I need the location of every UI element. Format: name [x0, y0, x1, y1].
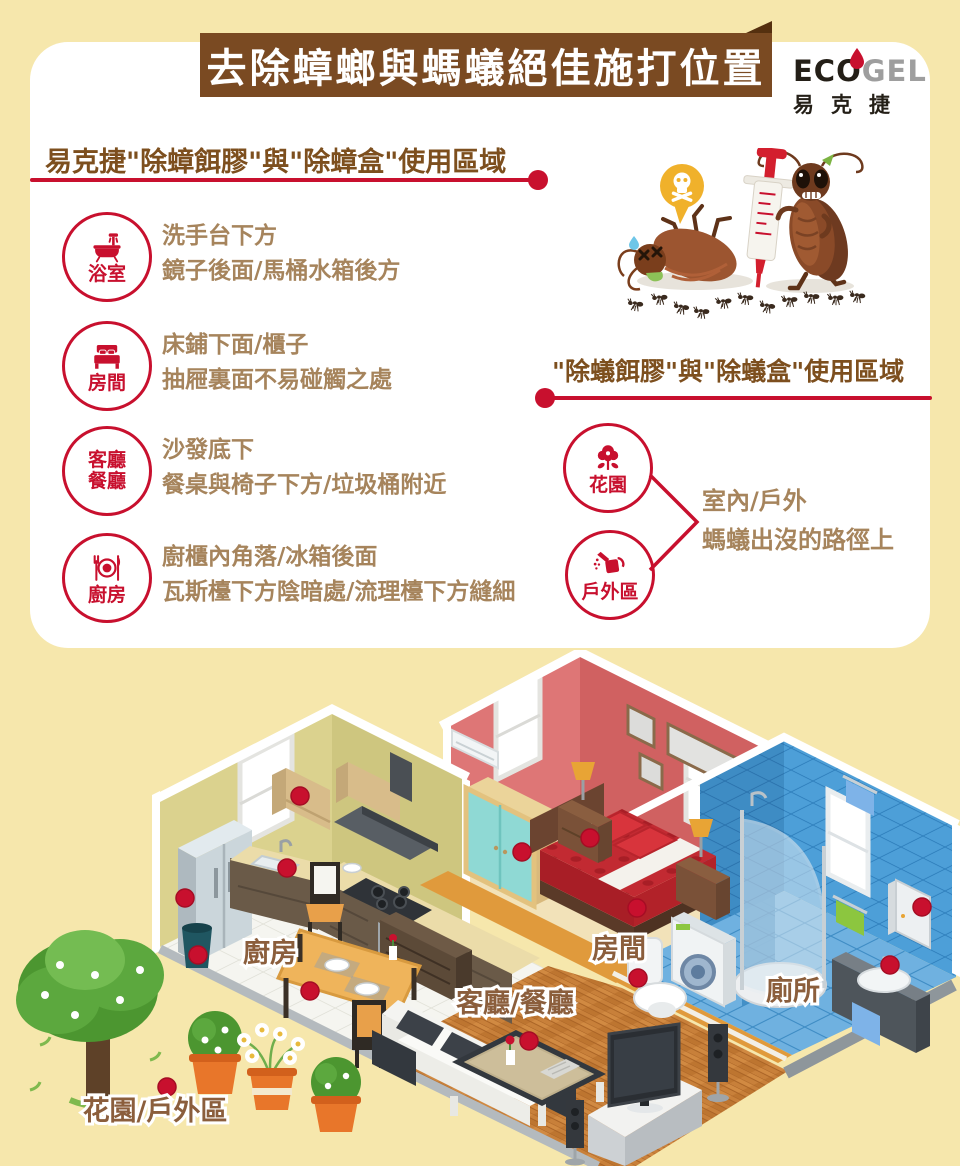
- rule-dot: [535, 388, 555, 408]
- gel-spot-marker: [520, 1032, 538, 1050]
- room-badge-garden: 花園: [563, 423, 653, 513]
- tip-line: 床鋪下面/櫃子: [162, 328, 392, 363]
- tip-line: 廚櫃內角落/冰箱後面: [162, 540, 515, 575]
- house-label-living-dining: 客廳/餐廳: [456, 987, 574, 1019]
- rule-dot: [528, 170, 548, 190]
- logo-text-gel: GEL: [862, 54, 927, 88]
- house-label-kitchen: 廚房: [243, 937, 297, 969]
- tip-line: 洗手台下方: [162, 219, 400, 254]
- room-badge-living-dining: 客廳 餐廳: [62, 426, 152, 516]
- logo-text-ec: EC: [793, 54, 836, 88]
- bathtub-icon: [88, 230, 126, 264]
- room-badge-outdoor: 戶外區: [565, 530, 655, 620]
- room-badge-bathroom: 浴室: [62, 212, 152, 302]
- cockroach-with-syringe: [733, 148, 863, 290]
- bed-icon: [88, 339, 126, 373]
- watering-can-icon: [591, 548, 629, 582]
- gel-spot-marker: [513, 843, 531, 861]
- gel-spot-marker: [881, 956, 899, 974]
- house-label-garden-outdoor: 花園/戶外區: [83, 1096, 228, 1127]
- garden-bush-pot-1: [188, 1011, 242, 1094]
- skull-speech-bubble: [660, 164, 704, 224]
- infographic-page: 去除蟑螂與螞蟻絕佳施打位置 ECOGEL 易克捷 易克捷"除蟑餌膠"與"除蟑盒"…: [0, 0, 960, 1166]
- gel-syringe: [733, 148, 797, 290]
- house-illustration: 廚房 房間 客廳/餐廳 廁所 花園/戶外區: [0, 650, 960, 1166]
- dead-cockroach: [619, 164, 744, 291]
- tip-line: 鏡子後面/馬桶水箱後方: [162, 254, 400, 289]
- tip-line: 餐桌與椅子下方/垃圾桶附近: [162, 468, 446, 503]
- note-line: 室內/戶外: [702, 482, 894, 521]
- ant-trail-illustration: [622, 284, 872, 320]
- gel-spot-marker: [581, 829, 599, 847]
- banner-fold: [746, 21, 772, 33]
- gel-spot-marker: [158, 1078, 176, 1096]
- bathroom-tips: 洗手台下方 鏡子後面/馬桶水箱後方: [162, 219, 400, 289]
- roach-section-rule: [30, 178, 538, 182]
- house-label-bedroom: 房間: [592, 934, 646, 965]
- cutlery-icon: [88, 551, 126, 585]
- room-badge-label: 客廳: [88, 450, 126, 471]
- droplet-icon: [849, 48, 865, 70]
- note-line: 螞蟻出沒的路徑上: [702, 521, 894, 560]
- title-banner: 去除蟑螂與螞蟻絕佳施打位置: [200, 33, 772, 97]
- gel-spot-marker: [278, 859, 296, 877]
- room-badge-label: 廚房: [88, 585, 126, 606]
- ant-section-header: "除蟻餌膠"與"除蟻盒"使用區域: [552, 352, 904, 388]
- living-dining-tips: 沙發底下 餐桌與椅子下方/垃圾桶附近: [162, 433, 446, 503]
- cockroach-illustration: [610, 148, 880, 293]
- gel-spot-marker: [629, 969, 647, 987]
- room-badge-kitchen: 廚房: [62, 533, 152, 623]
- room-badge-label: 花園: [589, 475, 627, 496]
- gel-spot-marker: [176, 889, 194, 907]
- gel-spot-marker: [189, 946, 207, 964]
- gel-spot-marker: [913, 898, 931, 916]
- ant-placement-note: 室內/戶外 螞蟻出沒的路徑上: [702, 482, 894, 560]
- brand-logo: ECOGEL 易克捷: [793, 56, 933, 119]
- room-badge-bedroom: 房間: [62, 321, 152, 411]
- gel-spot-marker: [301, 982, 319, 1000]
- house-label-toilet: 廁所: [766, 975, 820, 1007]
- ant-section-rule: [545, 396, 932, 400]
- logo-chinese: 易克捷: [793, 89, 933, 119]
- logo-wordmark: ECOGEL: [793, 56, 933, 86]
- garden-bush-pot-2: [311, 1057, 361, 1132]
- gel-spot-marker: [291, 787, 309, 805]
- kitchen-tips: 廚櫃內角落/冰箱後面 瓦斯檯下方陰暗處/流理檯下方縫細: [162, 540, 515, 610]
- room-badge-label: 房間: [88, 373, 126, 394]
- bedroom-tips: 床鋪下面/櫃子 抽屜裏面不易碰觸之處: [162, 328, 392, 398]
- room-badge-label: 餐廳: [88, 471, 126, 492]
- tip-line: 沙發底下: [162, 433, 446, 468]
- room-badge-label: 戶外區: [581, 582, 638, 603]
- page-title: 去除蟑螂與螞蟻絕佳施打位置: [207, 36, 766, 94]
- roach-section-header: 易克捷"除蟑餌膠"與"除蟑盒"使用區域: [45, 140, 506, 179]
- flower-icon: [589, 441, 627, 475]
- tip-line: 抽屜裏面不易碰觸之處: [162, 363, 392, 398]
- gel-spot-marker: [628, 899, 646, 917]
- room-badge-label: 浴室: [88, 264, 126, 285]
- tip-line: 瓦斯檯下方陰暗處/流理檯下方縫細: [162, 575, 515, 610]
